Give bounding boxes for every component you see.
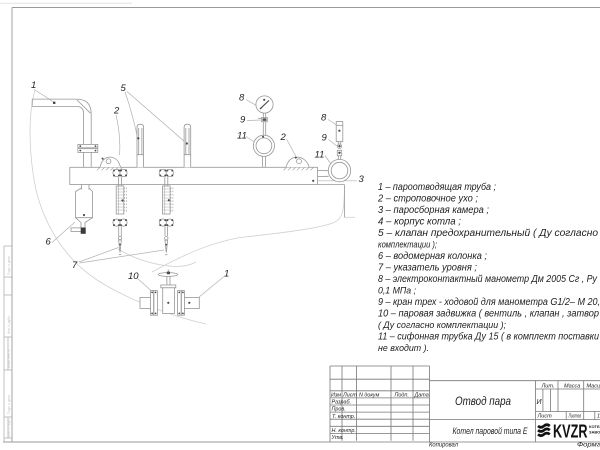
svg-text:КОТЕЛЬНЫЙ: КОТЕЛЬНЫЙ [589, 424, 600, 429]
svg-text:6: 6 [46, 237, 52, 248]
svg-text:ЗАВОД РОССИИ: ЗАВОД РОССИИ [589, 430, 600, 435]
svg-text:8 – электроконтактный манометр: 8 – электроконтактный манометр Дм 2005 С… [378, 274, 598, 285]
svg-text:Инв. N подл.: Инв. N подл. [7, 418, 11, 437]
svg-text:1: 1 [31, 80, 36, 91]
svg-text:9 – кран трех - ходовой для: 9 – кран трех - ходовой для манометра G1… [378, 297, 600, 308]
svg-text:7 – указатель уровня ;: 7 – указатель уровня ; [378, 263, 477, 274]
svg-text:2: 2 [113, 106, 120, 117]
svg-text:11: 11 [237, 131, 247, 142]
svg-text:( Ду согласно комплектации );: ( Ду согласно комплектации ); [378, 320, 506, 330]
svg-text:Разраб.: Разраб. [332, 400, 352, 406]
svg-text:10 – паровая задвижка ( вент: 10 – паровая задвижка ( вентиль , клапан… [378, 309, 599, 320]
svg-text:Утв.: Утв. [331, 435, 344, 441]
svg-text:Подп. и дата: Подп. и дата [7, 395, 11, 414]
svg-text:Листов: Листов [568, 414, 581, 420]
svg-text:Котел паровой типа Е: Котел паровой типа Е [453, 426, 529, 436]
svg-text:1: 1 [224, 269, 229, 280]
svg-text:8: 8 [321, 113, 327, 124]
svg-text:Лист: Лист [342, 392, 357, 398]
svg-text:0,1 МПа ;: 0,1 МПа ; [378, 286, 416, 296]
svg-text:6 – водомерная колонка ;: 6 – водомерная колонка ; [378, 251, 487, 262]
svg-text:5: 5 [121, 83, 127, 94]
svg-text:Отвод пара: Отвод пара [455, 396, 511, 408]
svg-text:KVZR: KVZR [553, 421, 588, 441]
svg-text:Пров.: Пров. [332, 407, 346, 413]
svg-text:N докум: N докум [359, 392, 380, 398]
svg-text:Т. контр.: Т. контр. [332, 414, 355, 420]
svg-text:2: 2 [280, 132, 287, 143]
svg-text:не входит ).: не входит ). [378, 343, 429, 353]
svg-text:Инв. N дубл.: Инв. N дубл. [7, 315, 11, 334]
svg-text:8: 8 [239, 93, 245, 104]
svg-text:Взам. инв. N: Взам. инв. N [7, 349, 11, 368]
svg-text:Подп.: Подп. [395, 392, 409, 398]
svg-text:9: 9 [240, 115, 246, 126]
svg-text:2 – строповочное ухо ;: 2 – строповочное ухо ; [377, 194, 478, 205]
svg-text:11: 11 [315, 150, 325, 161]
svg-text:4 – корпус котла ;: 4 – корпус котла ; [378, 217, 461, 228]
svg-text:Дата: Дата [414, 392, 429, 398]
svg-text:Масшт: Масшт [587, 383, 600, 389]
svg-text:10: 10 [128, 271, 139, 282]
svg-text:комплектации );: комплектации ); [378, 240, 437, 250]
svg-text:Изм: Изм [331, 392, 341, 398]
svg-text:Подп. и дата: Подп. и дата [7, 256, 11, 275]
svg-text:Копировал: Копировал [429, 441, 458, 448]
svg-text:3: 3 [359, 174, 365, 185]
svg-text:3 – паросборная камера ;: 3 – паросборная камера ; [378, 204, 489, 216]
svg-text:5 – клапан предохранительный: 5 – клапан предохранительный ( Ду соглас… [378, 228, 598, 239]
svg-text:Лист: Лист [537, 414, 553, 420]
svg-text:Н. контр.: Н. контр. [332, 428, 356, 434]
svg-text:1 – пароотводящая труба ;: 1 – пароотводящая труба ; [378, 181, 496, 193]
svg-text:7: 7 [72, 260, 78, 271]
svg-text:Лит.: Лит. [541, 383, 555, 389]
svg-text:Масса: Масса [564, 383, 580, 389]
svg-text:11 – сифонная трубка Ду 15 (: 11 – сифонная трубка Ду 15 ( в комплект … [378, 331, 599, 343]
svg-text:9: 9 [322, 133, 328, 144]
svg-text:Формат А3: Формат А3 [577, 441, 600, 448]
